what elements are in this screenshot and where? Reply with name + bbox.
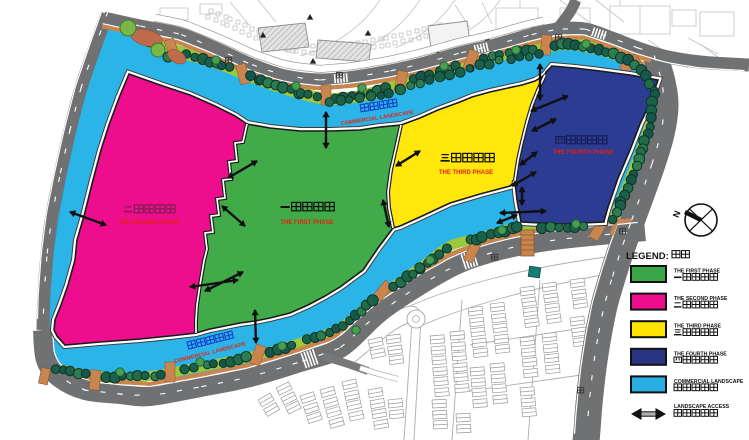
svg-text:THE SECOND PHASE: THE SECOND PHASE — [118, 220, 180, 226]
svg-text:LEGEND:: LEGEND: — [626, 251, 669, 262]
svg-text:THE FOURTH PHASE: THE FOURTH PHASE — [552, 150, 613, 156]
svg-text:THE THIRD PHASE: THE THIRD PHASE — [439, 170, 493, 176]
svg-text:THE FIRST PHASE: THE FIRST PHASE — [280, 220, 333, 226]
